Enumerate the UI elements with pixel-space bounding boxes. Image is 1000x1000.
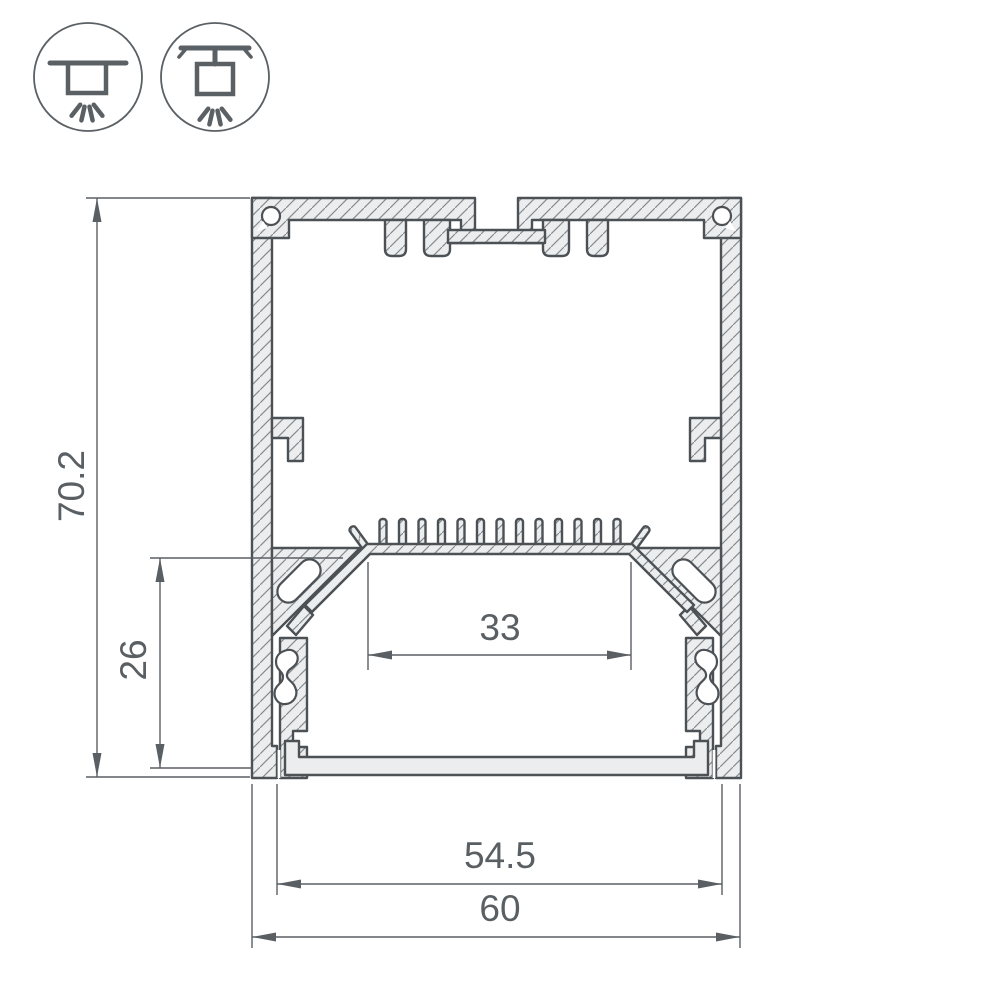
arrowhead	[156, 558, 165, 582]
light-rays-icon	[200, 109, 231, 125]
screw-boss-leg-inner	[543, 220, 569, 256]
profile-center-parts	[285, 230, 708, 775]
screw-boss-leg-outer	[587, 220, 608, 256]
profile-left-half	[252, 198, 475, 778]
arrowhead	[607, 651, 631, 660]
screw-boss-leg-outer	[385, 220, 406, 256]
surface-mount-icon	[34, 23, 142, 131]
arrowhead	[716, 933, 740, 942]
profile-right-half	[518, 198, 741, 778]
dimension-label-inner-width: 33	[479, 607, 520, 648]
corner-screw-port	[713, 207, 731, 225]
pendant-mount-icon	[161, 23, 269, 131]
mount-type-icons	[34, 23, 269, 131]
dimension-inner-width: 33	[368, 562, 631, 670]
profile-box	[197, 64, 233, 94]
dimension-label-overall-height: 70.2	[51, 450, 92, 522]
foot-slit	[278, 750, 281, 778]
dimensions: 70.2 26 33 54.5 60	[51, 198, 740, 948]
arrowhead	[368, 651, 392, 660]
inner-hook	[272, 418, 303, 461]
top-bridge-plate	[448, 230, 545, 243]
arrowhead	[277, 880, 301, 889]
screw-boss-leg-inner	[424, 220, 450, 256]
arrowhead	[93, 198, 102, 222]
dimension-label-diffuser-width: 54.5	[464, 835, 536, 876]
side-wall	[252, 198, 277, 778]
arrowhead	[698, 880, 722, 889]
arrowhead	[93, 753, 102, 777]
inner-hook	[690, 418, 721, 461]
side-wall	[716, 198, 741, 778]
arrowhead	[156, 744, 165, 768]
dimension-diffuser-width: 54.5	[277, 784, 722, 895]
foot-slit	[713, 750, 716, 778]
icon-circle	[34, 23, 142, 131]
dimension-label-overall-width: 60	[479, 888, 520, 929]
corner-screw-port	[262, 207, 280, 225]
diffuser-plate	[285, 741, 708, 775]
led-mounting-plate	[305, 544, 694, 612]
profile-cross-section	[252, 198, 741, 778]
light-rays-icon	[72, 105, 103, 121]
dimension-overall-height: 70.2	[51, 198, 250, 777]
dimension-label-inner-height: 26	[113, 639, 154, 680]
profile-box	[68, 63, 106, 93]
technical-drawing: 70.2 26 33 54.5 60	[0, 0, 1000, 1000]
arrowhead	[252, 933, 276, 942]
icon-circle	[161, 23, 269, 131]
